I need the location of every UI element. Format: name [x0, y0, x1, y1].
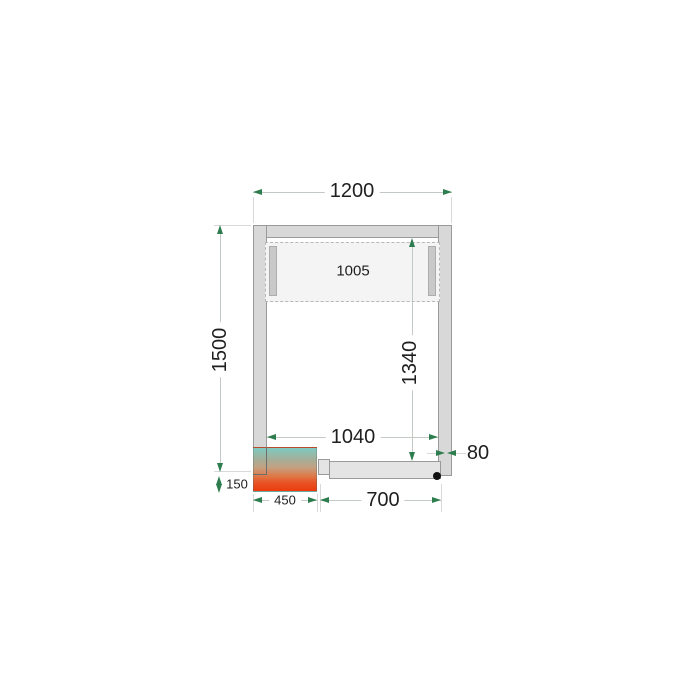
condenser-unit — [253, 447, 317, 492]
dim-wall-thickness-label: 80 — [467, 443, 489, 463]
dim-door-ext-right — [441, 484, 442, 512]
dim-inner-width-arrow-right — [429, 434, 438, 440]
dim-outer-width-ext-right — [451, 197, 452, 223]
evaporator-end-cap-right — [428, 246, 436, 296]
wall-right — [438, 225, 452, 476]
dim-inner-width-arrow-left — [267, 434, 276, 440]
dim-outer-width-arrow-right — [443, 189, 452, 195]
door-leaf — [329, 461, 441, 479]
dim-inner-depth-arrow-top — [409, 238, 415, 247]
dim-wall-thickness-stub-right — [456, 453, 466, 454]
dim-overhang-label: 150 — [226, 478, 248, 491]
dim-outer-width-arrow-left — [253, 189, 262, 195]
dim-inner-depth-arrow-bottom — [409, 452, 415, 461]
dim-outer-width-label: 1200 — [325, 180, 380, 202]
dim-inner-width-label: 1040 — [326, 426, 381, 448]
dim-outer-width-ext-left — [253, 197, 254, 223]
wall-edge-overlay-horizontal — [253, 474, 267, 475]
wall-top — [253, 225, 452, 238]
dim-condenser-label: 450 — [269, 493, 301, 508]
dim-overhang-arrow-down — [216, 484, 222, 493]
evaporator-width-label: 1005 — [336, 264, 369, 279]
dim-door-arrow-left — [320, 497, 329, 503]
dim-inner-depth-label: 1340 — [399, 336, 421, 391]
dim-wall-thickness-arrow-right — [447, 450, 456, 456]
dim-door-label: 700 — [361, 489, 404, 511]
cold-room-plan: 1005 1200 1500 1340 1040 80 700 450 — [0, 0, 700, 700]
dim-condenser-ext-right — [317, 494, 318, 512]
dim-wall-thickness-arrow-left — [436, 450, 445, 456]
dim-condenser-arrow-right — [308, 497, 317, 503]
dim-outer-depth-arrow-bottom — [217, 463, 223, 472]
door-hinge-dot — [433, 472, 441, 480]
dim-outer-depth-arrow-top — [217, 225, 223, 234]
dim-wall-thickness-stub-left — [427, 453, 436, 454]
evaporator-end-cap-left — [269, 246, 277, 296]
dim-condenser-arrow-left — [253, 497, 262, 503]
wall-edge-overlay-vertical — [266, 447, 267, 475]
dim-door-arrow-right — [432, 497, 441, 503]
dim-outer-depth-label: 1500 — [209, 323, 231, 378]
